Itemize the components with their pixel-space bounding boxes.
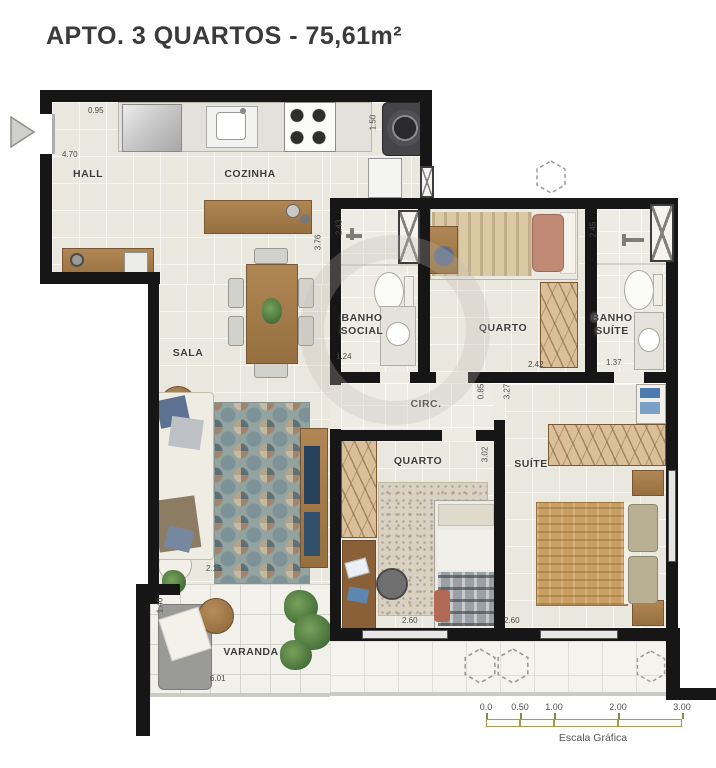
- wall: [468, 372, 614, 383]
- wall: [136, 584, 150, 736]
- dining-chair: [254, 362, 288, 378]
- desk-chair: [434, 246, 454, 266]
- folded-clothes: [640, 402, 660, 414]
- shower-icon: [350, 228, 354, 240]
- dim-label: 1.24: [336, 352, 352, 361]
- room-label-banho-suite: BANHO SUÍTE: [584, 312, 640, 338]
- dim-label: 1.40: [156, 591, 165, 621]
- wall: [148, 272, 159, 604]
- shower-glass-door: [398, 210, 420, 264]
- dining-chair: [298, 278, 314, 308]
- room-label-banho-social: BANHO SOCIAL: [335, 312, 389, 338]
- scale-tick: [682, 713, 684, 719]
- balcony-railing: [150, 693, 330, 697]
- window: [668, 470, 676, 562]
- doorway: [380, 372, 410, 383]
- bed-pillow: [532, 214, 564, 272]
- scale-tick-label: 2.00: [604, 702, 632, 712]
- entrance-door-leaf: [52, 114, 55, 154]
- desk: [342, 540, 376, 630]
- freezer-cabinet: [368, 158, 402, 198]
- dim-label: 6.01: [210, 674, 226, 683]
- dim-label: 1.37: [606, 358, 622, 367]
- room-label-varanda: VARANDA: [209, 646, 293, 659]
- shower-icon: [626, 238, 644, 242]
- dining-chair: [228, 278, 244, 308]
- kitchen-faucet: [240, 108, 246, 114]
- toilet-tank: [404, 276, 414, 308]
- page-title: APTO. 3 QUARTOS - 75,61m²: [46, 22, 402, 51]
- scale-tick-label: 3.00: [668, 702, 696, 712]
- bed-pillow: [628, 504, 658, 552]
- doorway: [614, 372, 644, 383]
- hall-decor-bowl: [70, 253, 84, 267]
- dim-label: 4.70: [62, 150, 78, 159]
- shower-icon: [346, 234, 362, 238]
- wall: [40, 154, 52, 284]
- dining-chair: [228, 316, 244, 346]
- hexagon-column-icon: [636, 650, 666, 683]
- shower-divider: [341, 264, 418, 266]
- dining-chair: [298, 316, 314, 346]
- sofa-pillow: [168, 416, 204, 450]
- room-label-circ: CIRC.: [404, 398, 448, 411]
- dim-label: 1.50: [369, 108, 378, 138]
- island-cooktop: [286, 204, 300, 218]
- room-label-sala: SALA: [158, 347, 218, 360]
- dim-label: 0.85: [477, 377, 486, 407]
- wall: [341, 430, 442, 441]
- fridge: [122, 104, 182, 152]
- wall: [644, 372, 666, 383]
- window: [362, 630, 448, 639]
- room-label-quarto-inferior: QUARTO: [387, 455, 449, 468]
- wardrobe: [540, 282, 578, 368]
- dim-label: 2.60: [402, 616, 418, 625]
- wall: [410, 372, 436, 383]
- scale-tick-label: 0.50: [506, 702, 534, 712]
- room-label-cozinha: COZINHA: [210, 168, 290, 181]
- bathroom-sink: [638, 328, 660, 352]
- wardrobe: [341, 432, 377, 538]
- shower-icon: [622, 234, 626, 246]
- washing-machine: [382, 102, 424, 156]
- hexagon-column-icon: [497, 648, 529, 684]
- shower-glass-door: [650, 204, 674, 262]
- dim-label: 2.42: [528, 360, 544, 369]
- window: [540, 630, 618, 639]
- scale-caption: Escala Gráfica: [470, 732, 716, 744]
- dim-label: 2.45: [589, 215, 598, 245]
- living-rug: [214, 402, 310, 584]
- dim-label: 2.43: [335, 213, 344, 243]
- room-label-suite: SUÍTE: [505, 458, 557, 471]
- entrance-doorway: [40, 114, 52, 154]
- dim-label: 0.95: [88, 106, 104, 115]
- hall-appliance: [124, 252, 148, 274]
- toilet-tank: [653, 274, 663, 306]
- bed-duvet: [438, 530, 494, 570]
- dim-label: 3.76: [314, 228, 323, 258]
- wall: [666, 688, 716, 700]
- scale-bar-divider: [519, 720, 521, 726]
- scale-tick-label: 1.00: [540, 702, 568, 712]
- scale-tick-label: 0.0: [472, 702, 500, 712]
- tv-screen: [304, 446, 320, 504]
- wall: [330, 198, 678, 209]
- wall: [330, 372, 380, 383]
- bed-throw: [434, 590, 450, 622]
- kitchen-sink: [216, 112, 246, 140]
- wall: [666, 628, 680, 692]
- doorway: [436, 372, 468, 383]
- dim-label: 2.60: [504, 616, 520, 625]
- wall: [40, 272, 160, 284]
- dim-label: 2.15: [206, 564, 222, 573]
- floor-plan-canvas: APTO. 3 QUARTOS - 75,61m²: [0, 0, 716, 768]
- wall: [40, 90, 432, 102]
- bathroom-sink: [386, 322, 410, 346]
- ledge-edge: [330, 692, 666, 696]
- table-centerpiece: [262, 298, 282, 324]
- wall: [494, 420, 505, 640]
- dim-label: 3.27: [503, 377, 512, 407]
- hexagon-column-icon: [464, 648, 496, 684]
- entrance-arrow-icon: [8, 114, 38, 150]
- tv-equipment: [304, 512, 320, 556]
- wall: [666, 198, 678, 640]
- bed-pillow: [438, 504, 494, 526]
- toilet: [624, 270, 654, 310]
- doorway: [442, 430, 476, 441]
- hexagon-column-icon: [536, 160, 566, 194]
- nightstand: [632, 470, 664, 496]
- stove: [284, 102, 336, 152]
- scale-bar: 0.0 0.50 1.00 2.00 3.00 Escala Gráfica: [470, 700, 716, 752]
- doorway: [330, 385, 341, 429]
- double-bed-mattress: [536, 502, 628, 606]
- scale-bar-divider: [617, 720, 619, 726]
- room-label-hall: HALL: [58, 168, 118, 181]
- wall: [420, 90, 432, 170]
- island-sink: [300, 214, 310, 224]
- desk-chair: [376, 568, 408, 600]
- bed-pillow: [628, 556, 658, 604]
- room-label-quarto-superior: QUARTO: [472, 322, 534, 335]
- scale-bar-divider: [553, 720, 555, 726]
- dim-label: 3.02: [481, 440, 490, 470]
- wall: [40, 90, 52, 114]
- dining-chair: [254, 248, 288, 264]
- folded-clothes: [640, 388, 660, 398]
- shower-divider: [597, 263, 666, 265]
- service-door: [420, 166, 434, 198]
- scale-bar-track: [486, 719, 682, 727]
- wardrobe: [548, 424, 666, 466]
